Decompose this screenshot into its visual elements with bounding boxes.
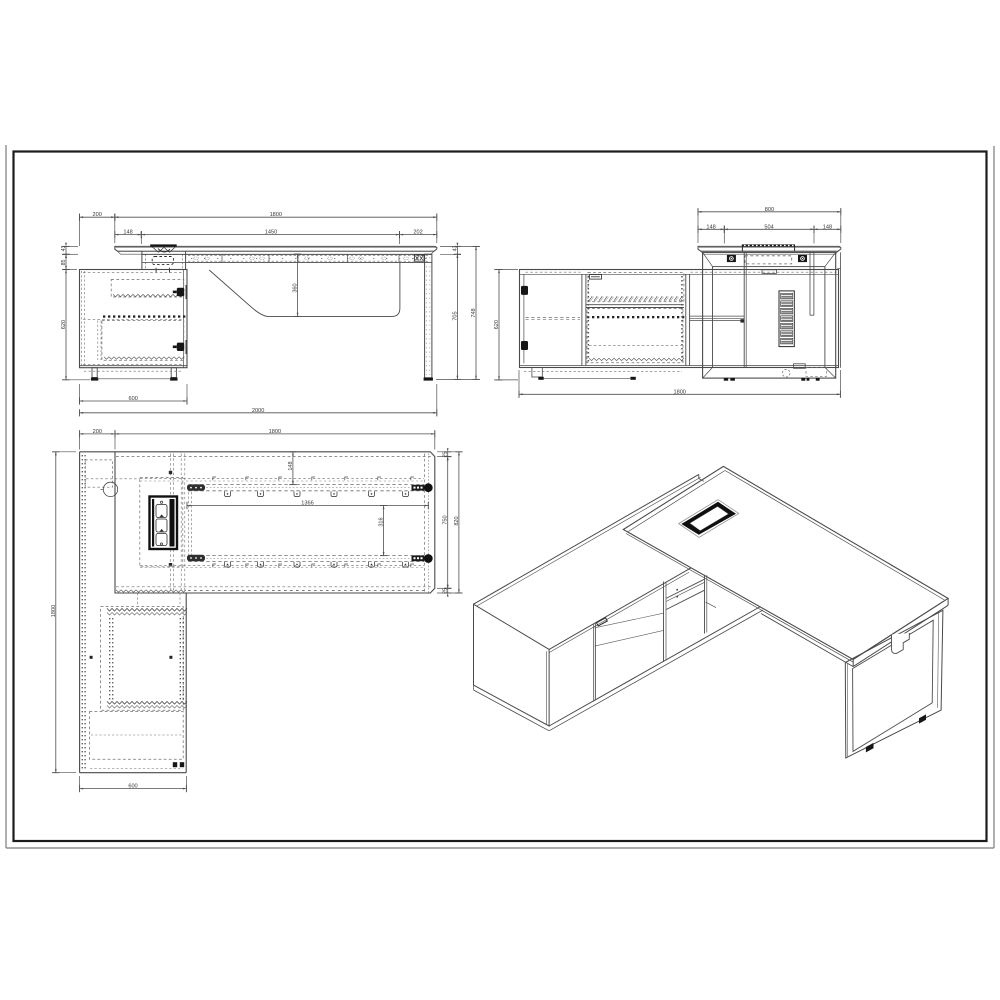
svg-text:748: 748 <box>471 308 477 317</box>
svg-text:1800: 1800 <box>51 605 57 617</box>
svg-text:1800: 1800 <box>673 389 685 395</box>
svg-text:148: 148 <box>123 230 132 236</box>
svg-text:316: 316 <box>379 517 385 526</box>
svg-text:148: 148 <box>823 224 832 230</box>
svg-text:1800: 1800 <box>269 429 281 435</box>
svg-text:750: 750 <box>443 515 449 524</box>
svg-text:1450: 1450 <box>265 230 277 236</box>
svg-text:148: 148 <box>706 224 715 230</box>
svg-text:1800: 1800 <box>270 212 282 218</box>
svg-text:600: 600 <box>128 784 137 790</box>
svg-text:705: 705 <box>452 311 458 320</box>
svg-text:1366: 1366 <box>301 501 313 507</box>
svg-text:202: 202 <box>413 230 422 236</box>
svg-text:148: 148 <box>288 461 294 470</box>
svg-text:820: 820 <box>454 516 460 525</box>
svg-text:620: 620 <box>494 320 500 329</box>
svg-text:600: 600 <box>129 396 138 402</box>
svg-text:200: 200 <box>93 212 102 218</box>
svg-text:200: 200 <box>93 429 102 435</box>
svg-text:85: 85 <box>61 260 67 266</box>
svg-text:360: 360 <box>293 283 299 292</box>
svg-text:620: 620 <box>61 320 67 329</box>
svg-text:800: 800 <box>765 207 774 213</box>
svg-text:504: 504 <box>764 224 773 230</box>
svg-text:2000: 2000 <box>252 408 264 414</box>
